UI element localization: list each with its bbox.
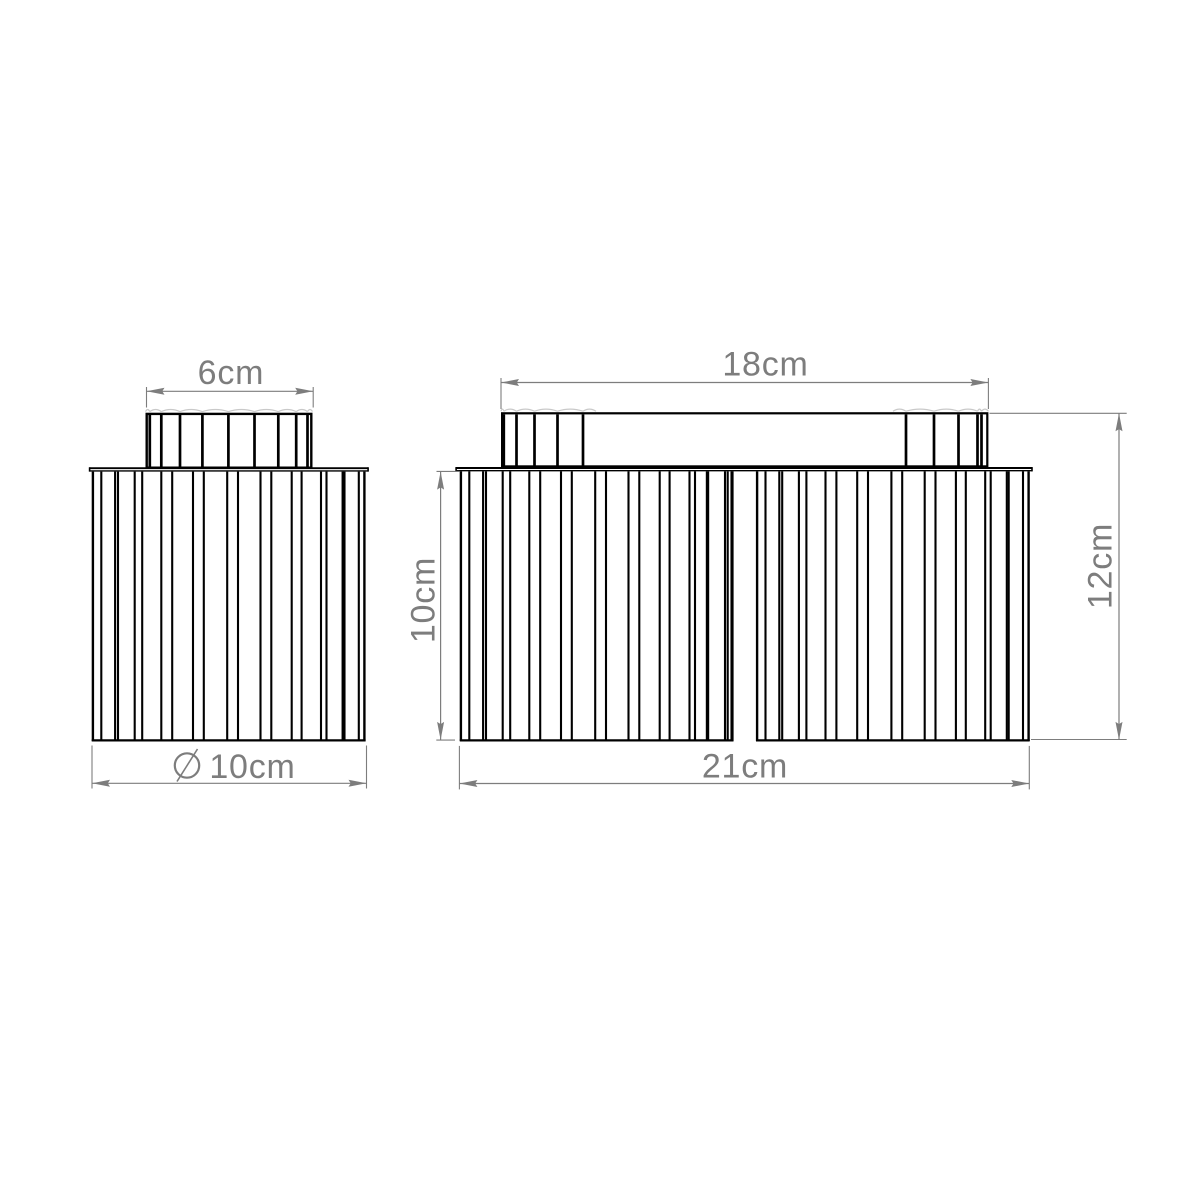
svg-text:10cm: 10cm [405,557,443,643]
svg-text:21cm: 21cm [702,748,788,786]
svg-text:12cm: 12cm [1082,523,1120,609]
svg-text:6cm: 6cm [198,354,265,392]
svg-text:18cm: 18cm [722,346,808,384]
svg-text:10cm: 10cm [209,748,295,786]
